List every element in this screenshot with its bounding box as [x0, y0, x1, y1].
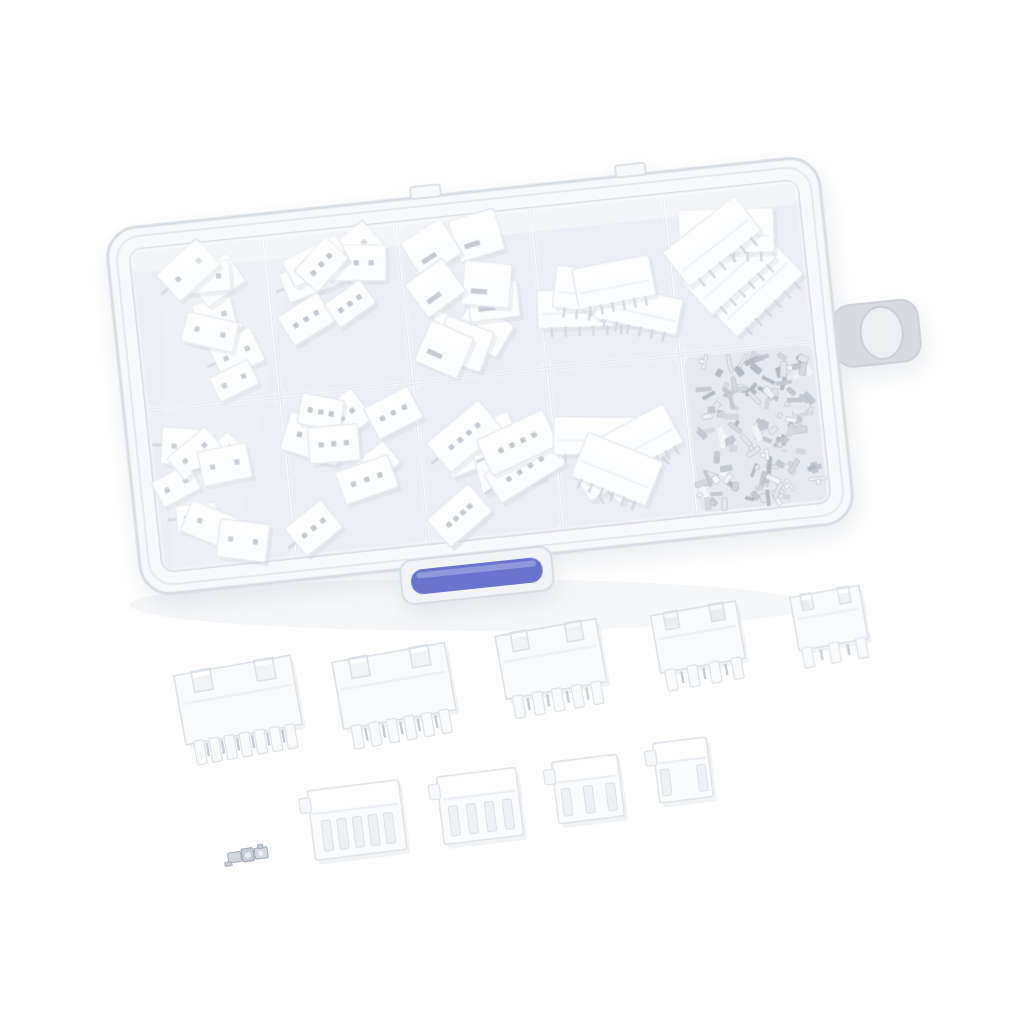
loose-pin-header	[332, 641, 463, 751]
connector-kit-scene	[0, 0, 1024, 1024]
loose-housing	[543, 754, 629, 830]
loose-pin-header	[790, 584, 875, 669]
loose-housing	[298, 779, 410, 866]
lid-hinge-bump	[410, 184, 441, 199]
loose-pin-header	[650, 599, 751, 692]
loose-crimp-terminal	[223, 844, 269, 867]
organizer-box	[104, 136, 943, 632]
lid-hinge-bump	[615, 163, 646, 178]
loose-housing	[427, 767, 527, 851]
loose-pin-header	[495, 617, 613, 720]
product-photo	[0, 0, 1024, 1024]
loose-housing	[644, 737, 717, 810]
loose-pin-header	[174, 654, 309, 767]
